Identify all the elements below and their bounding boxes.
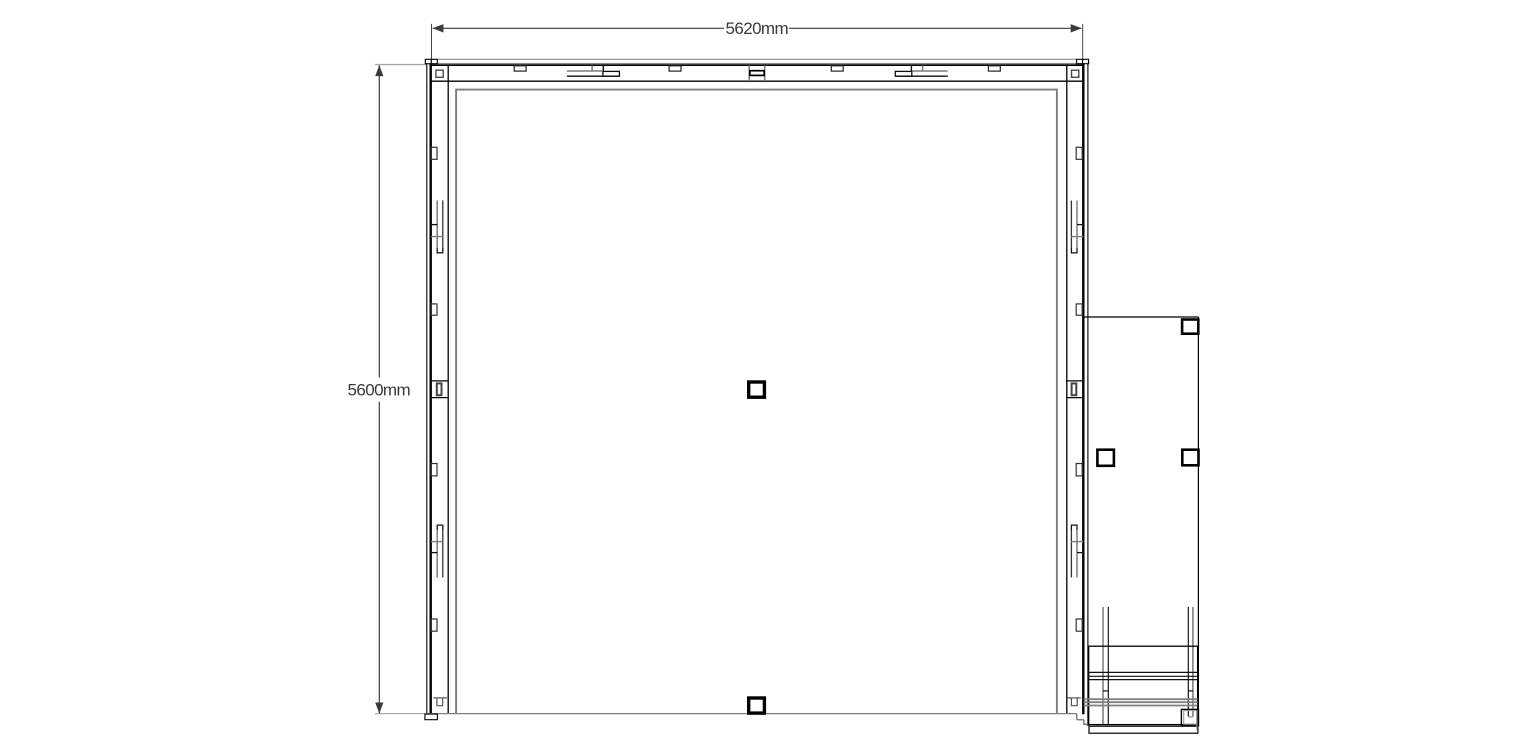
svg-text:5620mm: 5620mm (726, 19, 789, 38)
svg-text:5600mm: 5600mm (348, 381, 411, 400)
